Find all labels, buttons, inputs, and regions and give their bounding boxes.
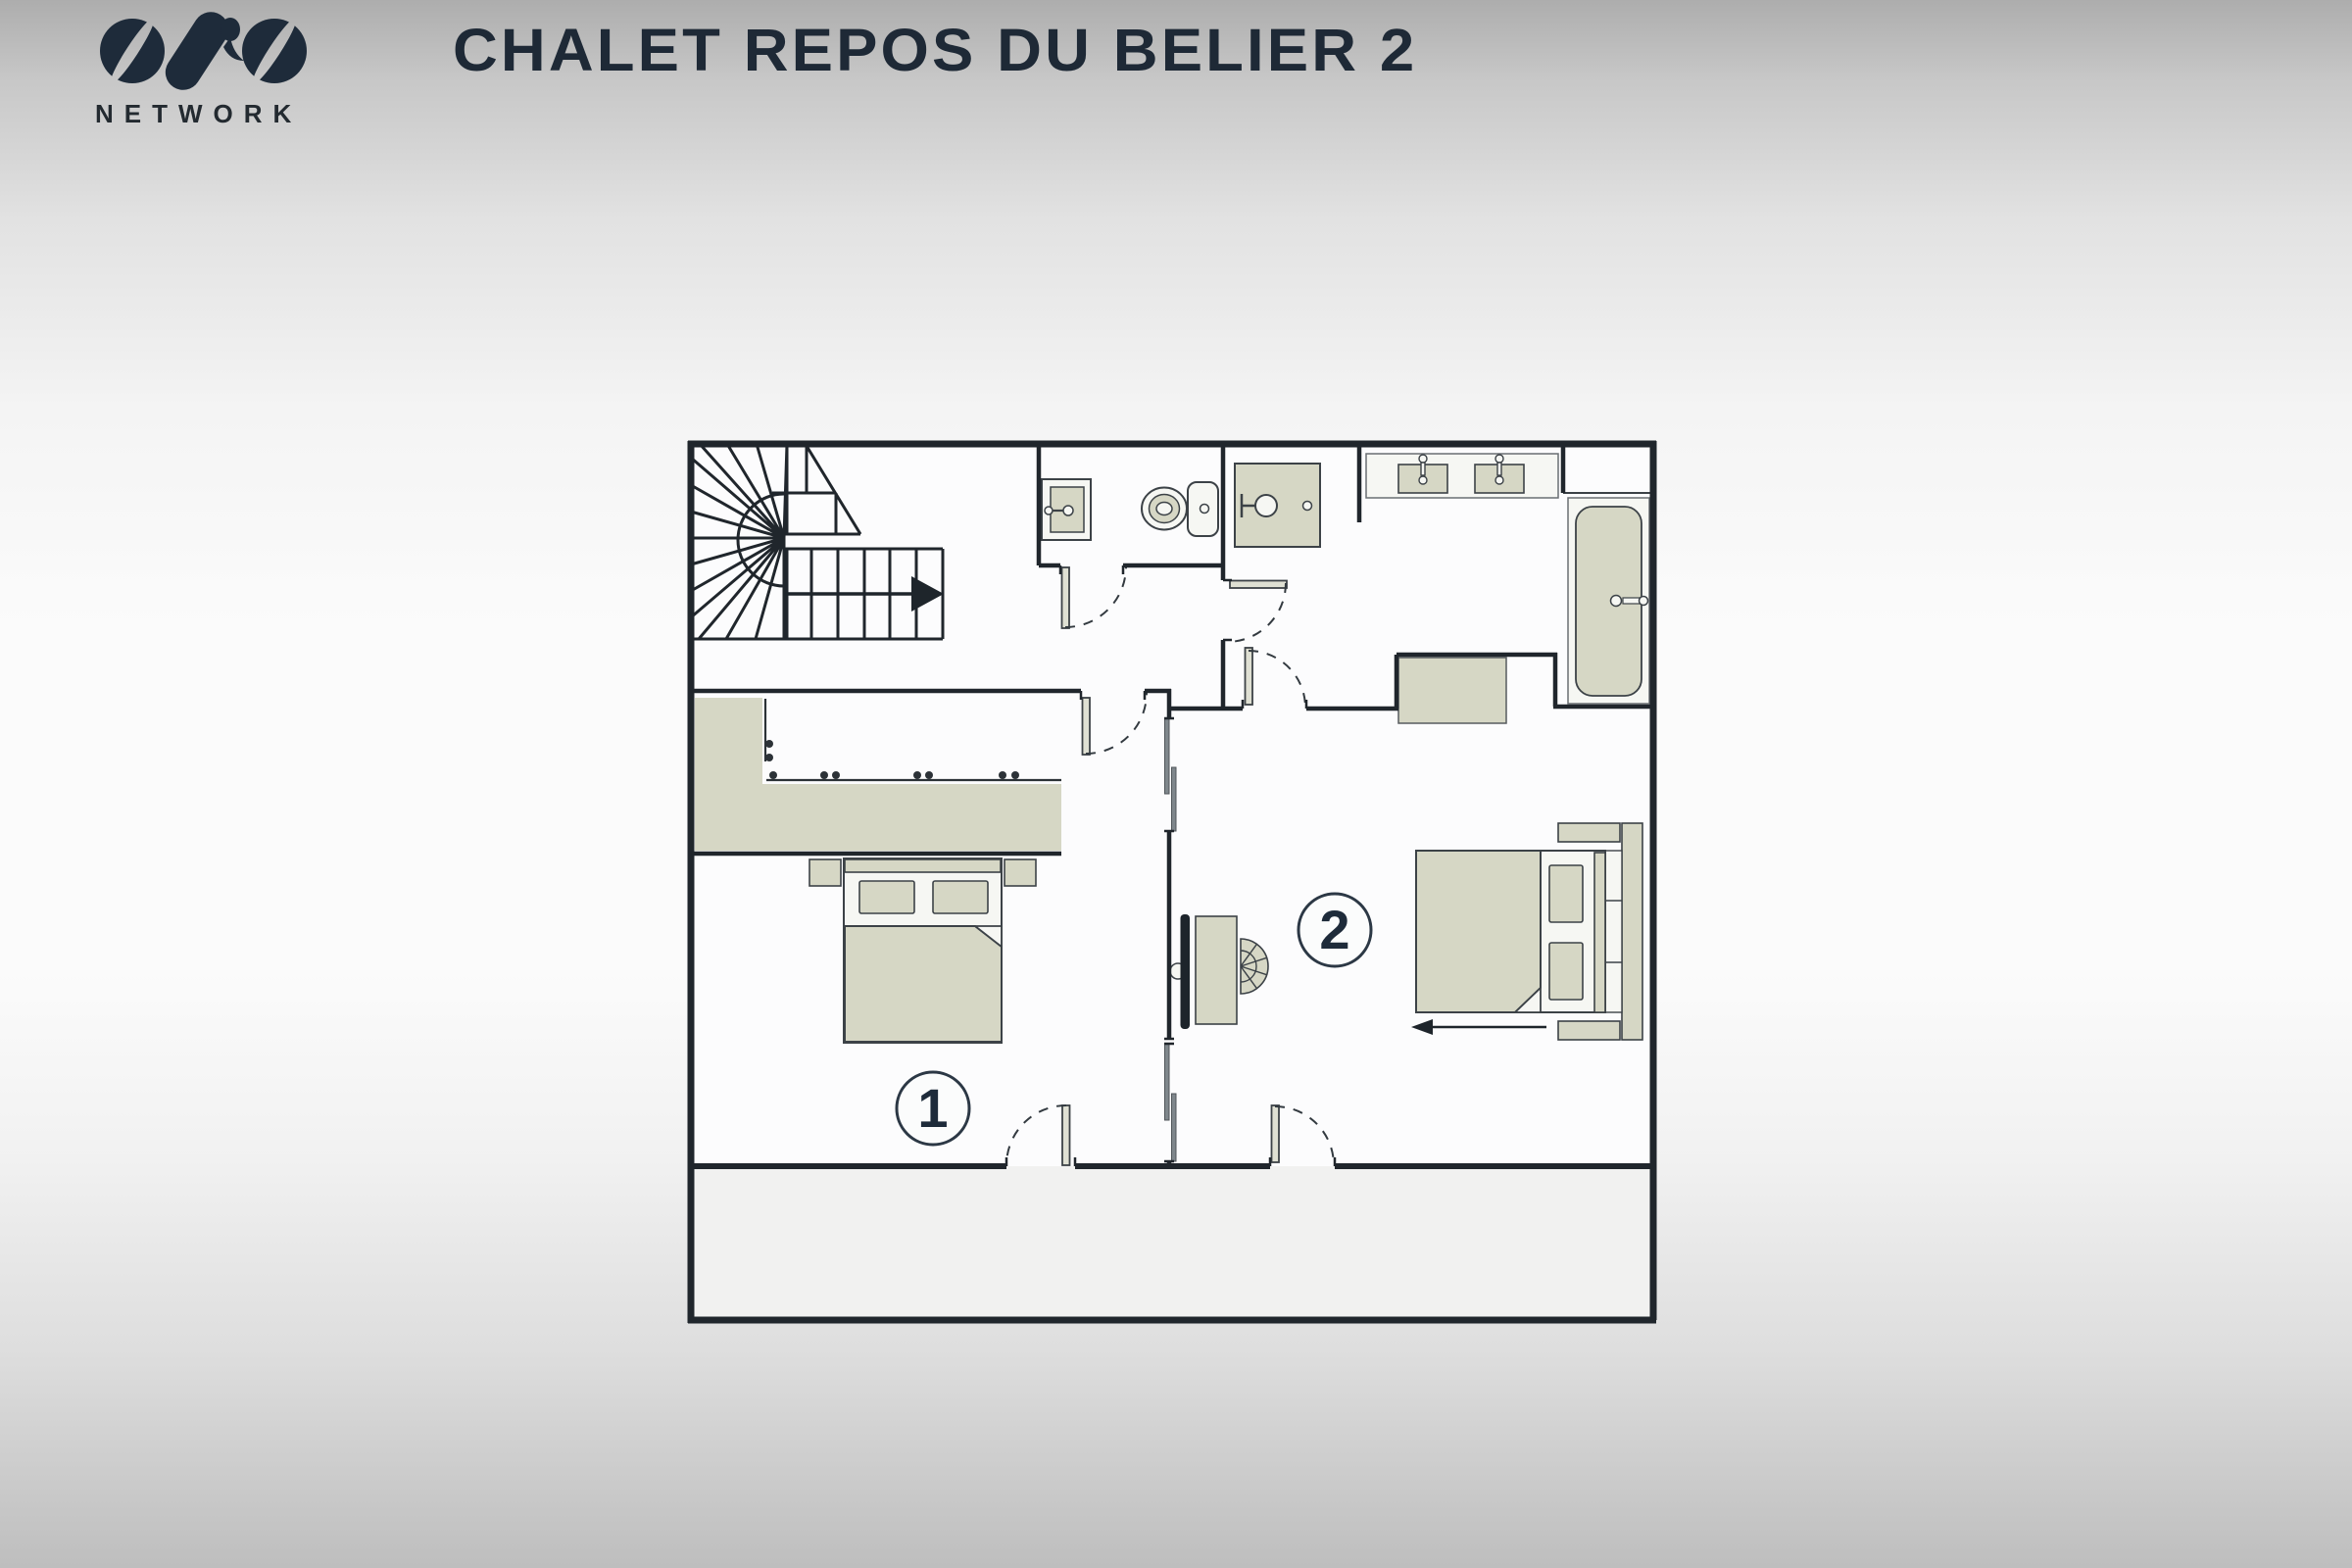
chest-icon <box>1398 658 1506 723</box>
pillow-icon <box>859 881 914 913</box>
duvet <box>1416 851 1541 1012</box>
bed-2 <box>1411 823 1642 1040</box>
badge-1-label: 1 <box>917 1077 948 1139</box>
bedroom2-balcony-door-leaf <box>1272 1105 1280 1162</box>
nightstand-icon <box>1004 859 1036 886</box>
bathroom-south-door-leaf <box>1246 648 1253 705</box>
nightstand-icon <box>1558 823 1620 842</box>
pillow-icon <box>933 881 988 913</box>
landing-door-leaf <box>1083 698 1091 755</box>
pillow-icon <box>1549 865 1583 922</box>
badge-bedroom-1: 1 <box>897 1072 969 1145</box>
desk-icon <box>1196 916 1237 1024</box>
tv-icon <box>1181 914 1191 1029</box>
headboard-shelf <box>1605 851 1622 1012</box>
nightstand-icon <box>1558 1021 1620 1040</box>
duvet <box>845 926 1002 1042</box>
badge-bedroom-2: 2 <box>1298 894 1371 966</box>
bed-1 <box>809 858 1036 1043</box>
shower-icon <box>1235 464 1320 547</box>
bathtub-icon <box>1563 493 1653 704</box>
hand-basin-icon <box>1042 479 1091 540</box>
headboard <box>1594 853 1605 1012</box>
badge-2-label: 2 <box>1319 899 1349 960</box>
pillow-icon <box>1549 943 1583 1000</box>
headboard-panel <box>1622 823 1642 1040</box>
wc-door-leaf <box>1062 567 1070 628</box>
floor-plan: 1 2 <box>0 0 2352 1568</box>
balcony-floor <box>691 1166 1653 1320</box>
nightstand-icon <box>809 859 841 886</box>
double-vanity-icon <box>1366 454 1558 498</box>
bathroom-west-door-leaf <box>1230 581 1287 589</box>
headboard <box>845 859 1001 872</box>
bedroom1-balcony-door-leaf <box>1062 1105 1070 1165</box>
